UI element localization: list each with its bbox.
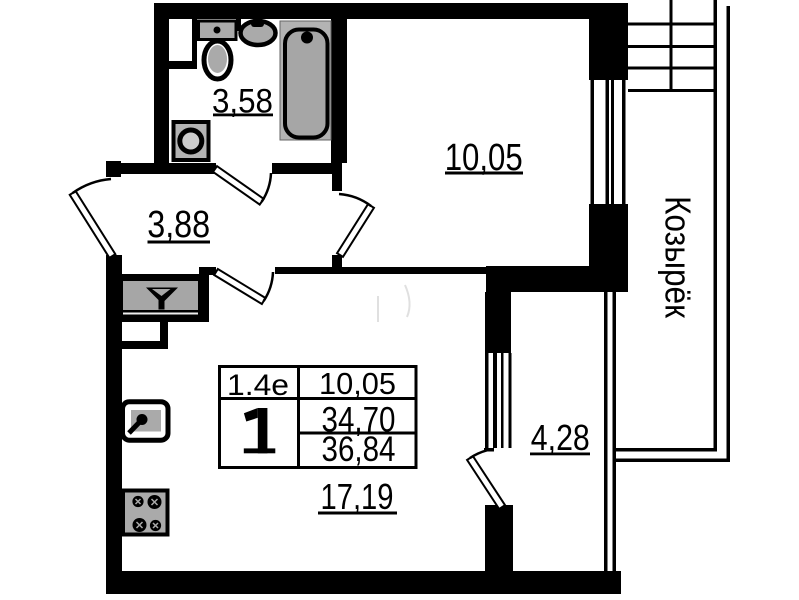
svg-text:4,28: 4,28: [531, 417, 590, 458]
svg-text:17,19: 17,19: [321, 476, 394, 517]
svg-text:36,84: 36,84: [322, 430, 396, 469]
svg-text:10,05: 10,05: [319, 366, 396, 401]
svg-text:3,88: 3,88: [147, 204, 210, 246]
svg-text:1.4e: 1.4e: [227, 369, 289, 402]
svg-text:Козырёк: Козырёк: [658, 196, 699, 318]
